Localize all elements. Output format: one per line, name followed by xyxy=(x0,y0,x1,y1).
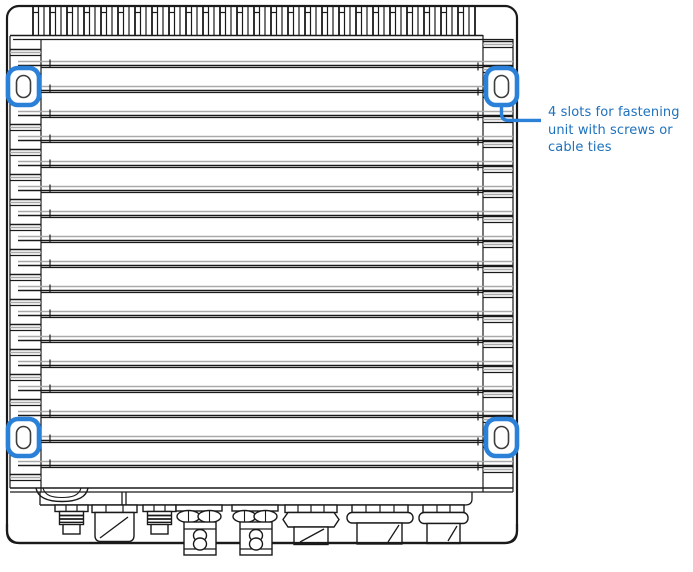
slot-highlight xyxy=(486,419,517,456)
annotation-line-1: 4 slots for fastening xyxy=(548,104,693,122)
mounting-slot-bottom-right xyxy=(486,419,517,456)
device-top-view-drawing xyxy=(0,0,693,572)
slot-highlight xyxy=(8,68,39,105)
io-connector-latched xyxy=(92,505,137,542)
mounting-slot-top-right xyxy=(486,68,517,105)
mounting-slot-bottom-left xyxy=(8,419,39,456)
circular-connector-right xyxy=(419,505,468,544)
slot-highlight xyxy=(8,419,39,456)
mounting-slot-top-left xyxy=(8,68,39,105)
annotation-line-3: cable ties xyxy=(548,139,693,157)
slot-highlight xyxy=(486,68,517,105)
annotation-line-2: unit with screws or xyxy=(548,122,693,140)
figure-canvas: 4 slots for fastening unit with screws o… xyxy=(0,0,693,572)
annotation-fastening-slots: 4 slots for fastening unit with screws o… xyxy=(548,104,693,157)
